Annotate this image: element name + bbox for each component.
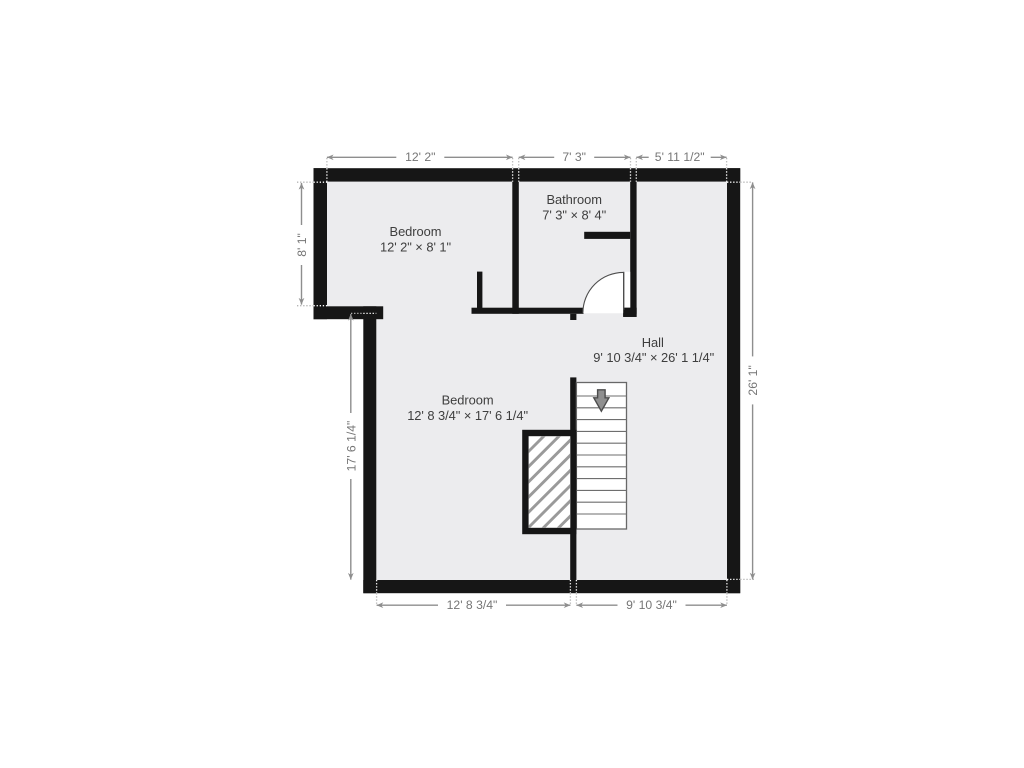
svg-text:12' 8 3/4" × 17' 6 1/4": 12' 8 3/4" × 17' 6 1/4" bbox=[407, 408, 528, 423]
svg-text:8' 1": 8' 1" bbox=[295, 233, 309, 257]
svg-text:12' 2": 12' 2" bbox=[405, 150, 435, 164]
svg-text:7' 3": 7' 3" bbox=[562, 150, 586, 164]
svg-text:Hall: Hall bbox=[642, 335, 664, 350]
svg-text:26' 1": 26' 1" bbox=[746, 365, 760, 395]
svg-text:17' 6 1/4": 17' 6 1/4" bbox=[344, 421, 358, 472]
svg-text:Bathroom: Bathroom bbox=[546, 192, 602, 207]
svg-text:7' 3" × 8' 4": 7' 3" × 8' 4" bbox=[542, 208, 606, 223]
svg-text:9' 10 3/4" × 26' 1 1/4": 9' 10 3/4" × 26' 1 1/4" bbox=[593, 350, 714, 365]
svg-text:12' 2" × 8' 1": 12' 2" × 8' 1" bbox=[380, 239, 452, 254]
svg-text:9' 10 3/4": 9' 10 3/4" bbox=[626, 598, 677, 612]
svg-text:5' 11 1/2": 5' 11 1/2" bbox=[655, 150, 705, 164]
svg-text:12' 8 3/4": 12' 8 3/4" bbox=[447, 598, 498, 612]
svg-text:Bedroom: Bedroom bbox=[390, 224, 442, 239]
svg-text:Bedroom: Bedroom bbox=[442, 392, 494, 407]
